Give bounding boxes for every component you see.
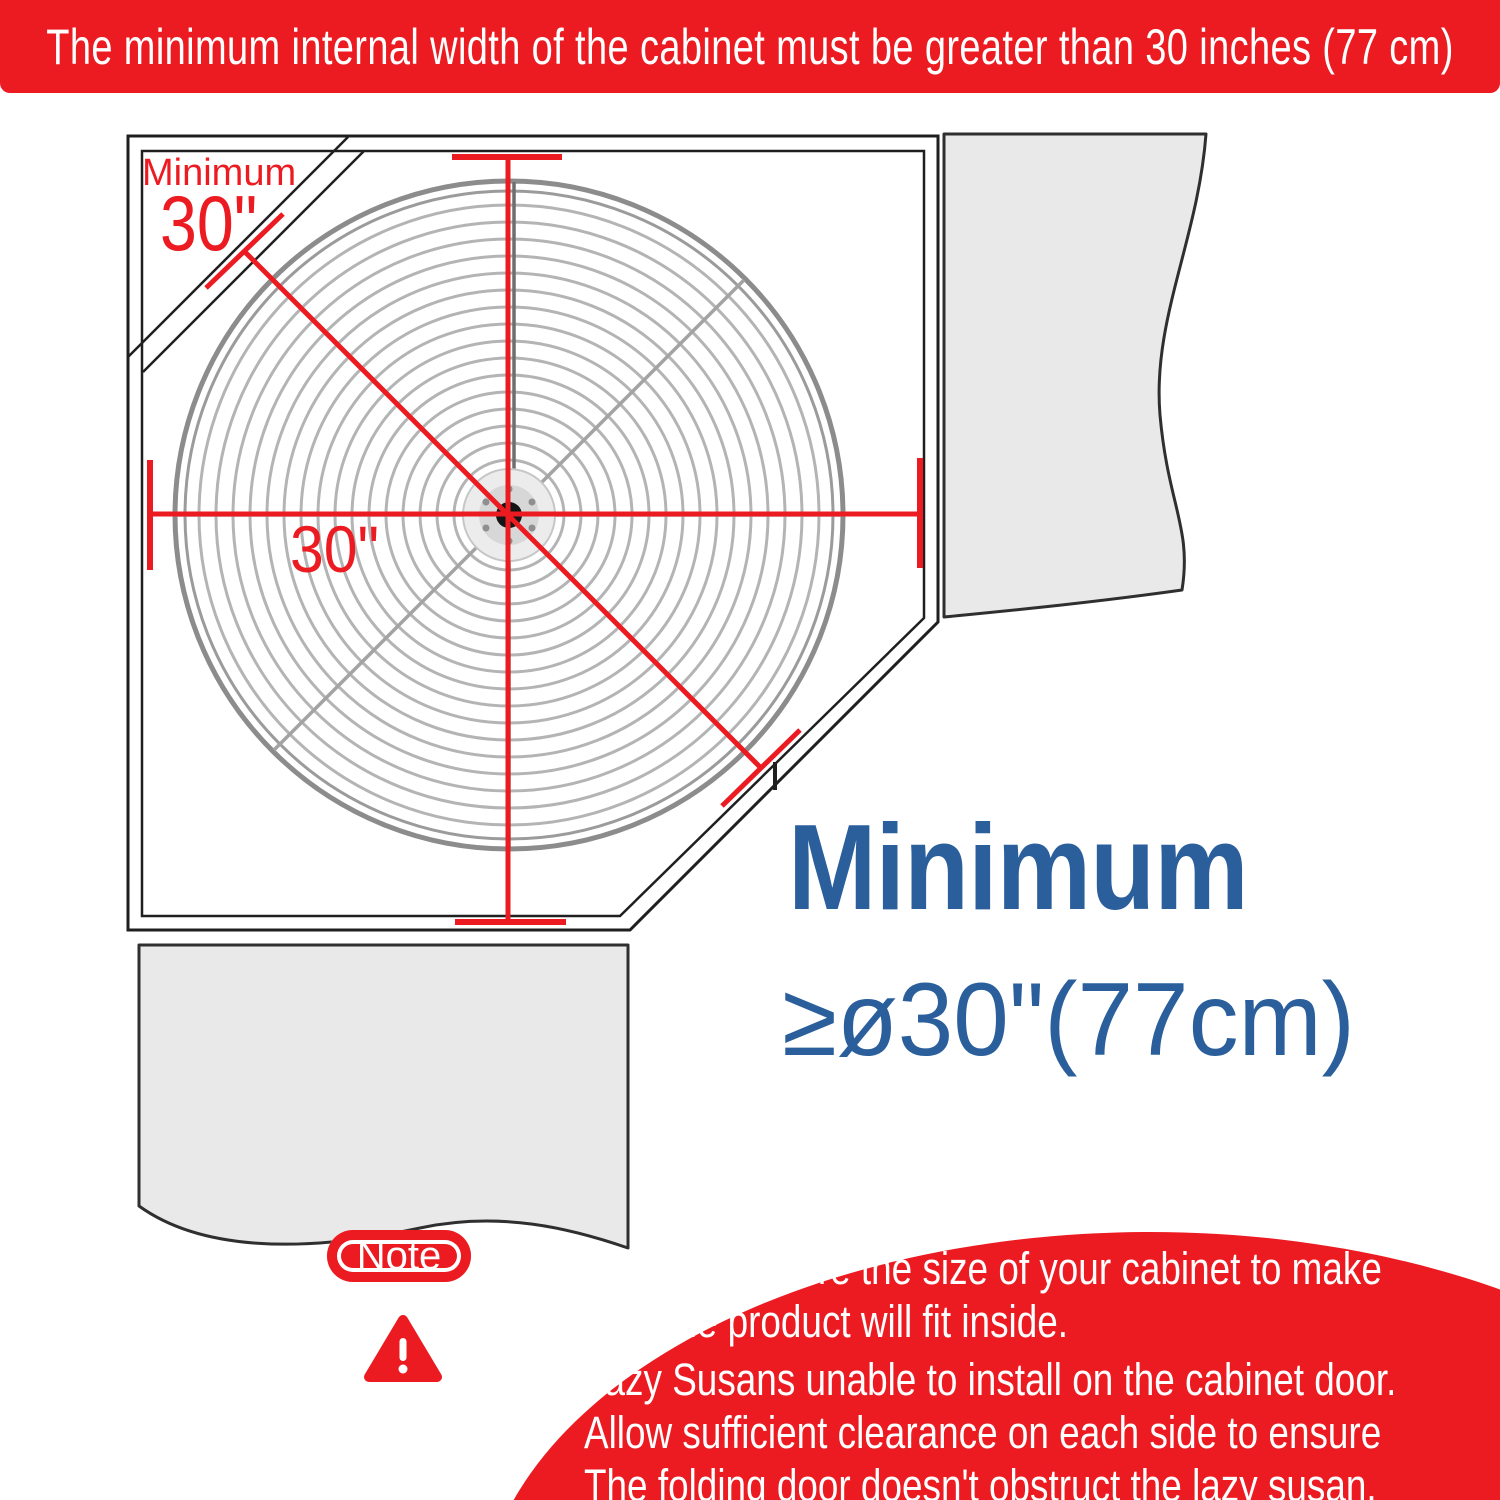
adjacent-cabinet-bottom: [139, 945, 628, 1248]
corner-dimension-value: 30": [160, 184, 257, 262]
note-line: Allow sufficient clearance on each side …: [584, 1410, 1381, 1455]
note-line: Lazy Susans unable to install on the cab…: [584, 1357, 1396, 1402]
note-badge-label: Note: [357, 1236, 442, 1276]
minimum-title: Minimum: [788, 806, 1248, 928]
note-line: Please measure the size of your cabinet …: [584, 1246, 1382, 1291]
width-dimension-value: 30": [290, 516, 379, 582]
product-instruction-image: The minimum internal width of the cabine…: [0, 0, 1500, 1500]
note-line: The folding door doesn't obstruct the la…: [584, 1463, 1377, 1500]
note-line: sure the product will fit inside.: [584, 1299, 1068, 1344]
adjacent-cabinet-right: [944, 134, 1206, 617]
note-badge: Note: [327, 1230, 471, 1282]
minimum-diameter-value: ≥ø30"(77cm): [782, 968, 1355, 1072]
warning-triangle-icon: [363, 1313, 443, 1385]
